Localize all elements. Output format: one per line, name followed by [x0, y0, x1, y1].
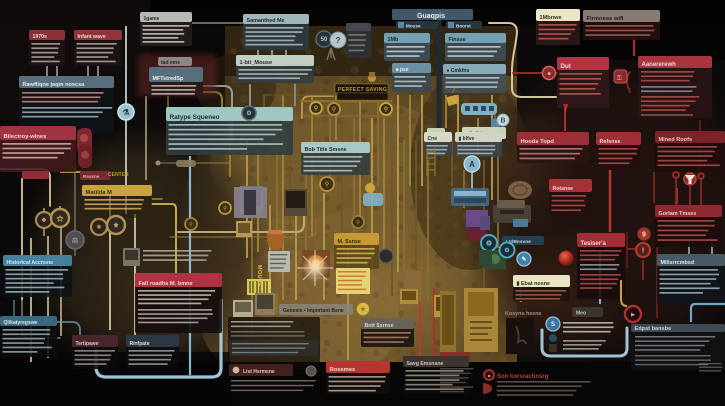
svg-text:Firmness wifi: Firmness wifi: [587, 16, 624, 22]
svg-text:✎: ✎: [521, 256, 526, 263]
svg-text:Rossmes: Rossmes: [330, 367, 356, 373]
svg-text:★: ★: [360, 306, 366, 313]
svg-text:Historical Accnsne: Historical Accnsne: [7, 260, 54, 266]
svg-text:PERFECT SAVING: PERFECT SAVING: [338, 87, 387, 93]
svg-text:1Mb: 1Mb: [388, 37, 399, 43]
svg-text:Gortam Tmses: Gortam Tmses: [659, 211, 697, 217]
svg-text:❖: ❖: [41, 217, 47, 224]
svg-text:CENTER: CENTER: [108, 172, 129, 178]
svg-text:A: A: [469, 160, 475, 169]
svg-text:Rotsnse: Rotsnse: [553, 186, 574, 192]
svg-text:Matilda M: Matilda M: [86, 190, 113, 196]
svg-text:1Mbnwe: 1Mbnwe: [540, 15, 562, 21]
svg-text:⚙: ⚙: [486, 240, 492, 248]
svg-text:⚛: ⚛: [96, 224, 101, 231]
svg-text:●: ●: [487, 374, 490, 380]
svg-text:▮ Ebat nosne: ▮ Ebat nosne: [517, 281, 551, 287]
svg-text:1970s: 1970s: [33, 34, 48, 40]
svg-text:⚝: ⚝: [57, 215, 64, 223]
svg-text:Kosyns hssne: Kosyns hssne: [505, 311, 542, 317]
svg-text:M. Ssnse: M. Ssnse: [338, 239, 361, 245]
svg-text:⚲: ⚲: [325, 181, 329, 188]
svg-text:⚲: ⚲: [332, 106, 336, 113]
svg-text:B: B: [500, 118, 505, 125]
svg-text:Fall roadhs M. bmne: Fall roadhs M. bmne: [139, 281, 193, 287]
svg-text:1-bit_Mouse: 1-bit_Mouse: [240, 60, 273, 66]
svg-text:S: S: [551, 322, 555, 328]
svg-text:⚖: ⚖: [72, 237, 79, 245]
svg-text:⚗: ⚗: [122, 108, 129, 117]
svg-text:■: ■: [547, 71, 550, 77]
svg-text:Dut: Dut: [561, 63, 571, 70]
svg-text:Mined Roofs: Mined Roofs: [659, 137, 693, 143]
svg-text:⚲: ⚲: [189, 222, 193, 228]
svg-text:Crw: Crw: [428, 136, 438, 142]
svg-text:■ pse: ■ pse: [396, 67, 409, 73]
svg-text:Infant wave: Infant wave: [78, 34, 106, 40]
svg-text:Genesis • Important Bsne: Genesis • Important Bsne: [283, 308, 344, 314]
svg-text:MFTstredSp: MFTstredSp: [153, 76, 184, 82]
svg-text:Ratype Squeneo: Ratype Squeneo: [170, 114, 220, 121]
svg-text:Son korsrachnsrg: Son korsrachnsrg: [497, 374, 549, 380]
svg-text:Rinfpate: Rinfpate: [130, 341, 150, 347]
svg-text:Samanthed Me: Samanthed Me: [247, 18, 285, 24]
svg-text:Milisrrcmbsd: Milisrrcmbsd: [661, 260, 695, 266]
svg-text:Bob Title Smsne: Bob Title Smsne: [305, 147, 347, 153]
svg-text:Finsse: Finsse: [449, 37, 466, 43]
svg-text:Edpst bansbe: Edpst bansbe: [635, 326, 672, 332]
svg-text:Rawfliqne jaqm noscsa: Rawfliqne jaqm noscsa: [23, 82, 86, 88]
svg-text:Qlikatyregswe: Qlikatyregswe: [4, 320, 38, 326]
svg-text:● Cmkfns: ● Cmkfns: [447, 68, 470, 74]
svg-text:Tesiser'a: Tesiser'a: [581, 241, 607, 247]
svg-text:1gams: 1gams: [144, 16, 160, 22]
svg-text:MOUSE: MOUSE: [256, 265, 262, 287]
svg-text:Meo: Meo: [576, 311, 586, 317]
svg-text:⚿: ⚿: [617, 75, 622, 82]
svg-text:⚲: ⚲: [223, 206, 227, 212]
svg-text:50: 50: [321, 37, 328, 43]
svg-text:⚙: ⚙: [246, 110, 251, 117]
svg-text:List Hsrmsne: List Hsrmsne: [243, 369, 275, 375]
svg-text:Aanererewh: Aanererewh: [642, 62, 677, 68]
svg-text:Bnorst: Bnorst: [456, 24, 471, 29]
svg-text:Hoods Topd: Hoods Topd: [521, 139, 555, 145]
svg-text:Rsssne: Rsssne: [83, 174, 100, 179]
svg-text:!: !: [642, 248, 644, 255]
svg-text:tad ems: tad ems: [161, 60, 180, 66]
svg-text:▮ blfve: ▮ blfve: [459, 136, 475, 142]
svg-text:Savg Emsnsne: Savg Emsnsne: [407, 361, 444, 367]
svg-text:⚲: ⚲: [384, 106, 388, 113]
svg-text:Bott Ssrnse: Bott Ssrnse: [365, 323, 394, 329]
svg-text:⚲: ⚲: [356, 220, 360, 226]
svg-text:⚜: ⚜: [113, 222, 119, 230]
svg-text:9: 9: [642, 232, 646, 239]
svg-text:Refsnse: Refsnse: [600, 139, 621, 145]
svg-text:?: ?: [336, 36, 341, 45]
svg-text:Bilectroy-wines: Bilectroy-wines: [4, 134, 47, 140]
svg-text:⚙: ⚙: [504, 247, 509, 254]
svg-text:⚲: ⚲: [314, 105, 318, 112]
svg-text:Tertipawe: Tertipawe: [76, 341, 99, 347]
svg-text:Mouse: Mouse: [406, 24, 421, 29]
svg-text:Guaqpis: Guaqpis: [417, 13, 445, 20]
